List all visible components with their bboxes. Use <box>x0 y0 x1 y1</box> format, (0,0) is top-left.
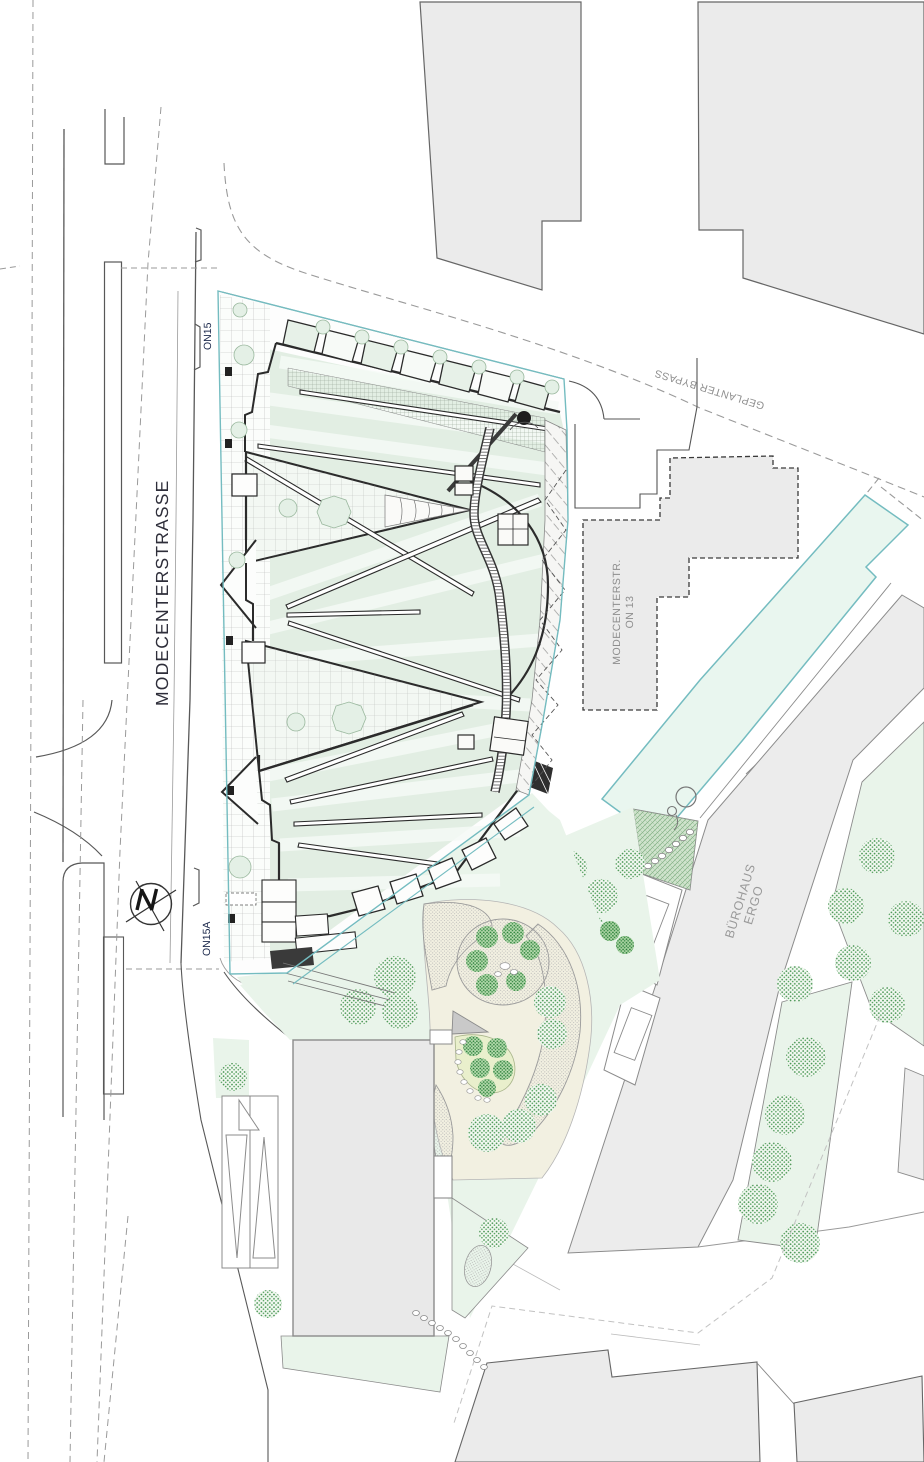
svg-text:ON 13: ON 13 <box>624 596 636 629</box>
svg-text:MODECENTERSTR.: MODECENTERSTR. <box>611 559 623 665</box>
svg-text:ON15: ON15 <box>202 322 214 350</box>
svg-text:MODECENTERSTRASSE: MODECENTERSTRASSE <box>152 479 172 706</box>
svg-text:ON15A: ON15A <box>201 922 213 956</box>
